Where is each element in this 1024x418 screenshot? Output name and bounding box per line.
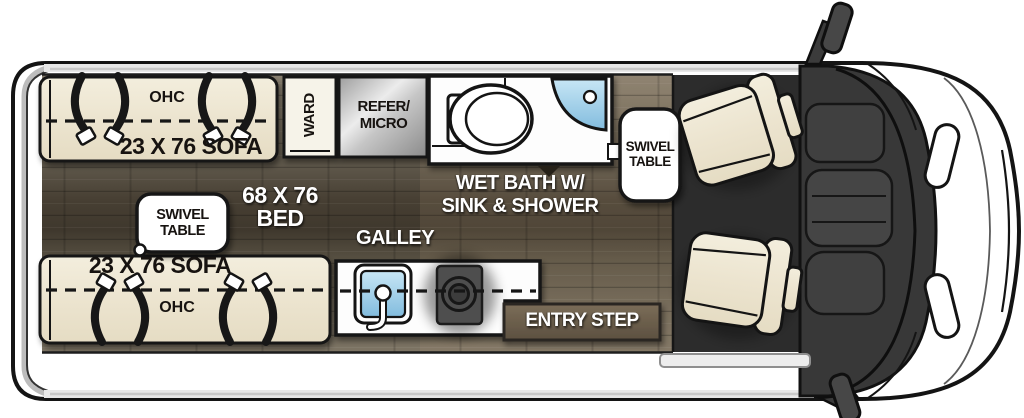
floorplan-canvas: OHC 23 X 76 SOFA 23 X 76 SOFA OHC WARD R… <box>0 0 1024 418</box>
side-mirror-top-icon <box>806 1 854 64</box>
refrigerator-label: REFER/ MICRO <box>341 99 426 132</box>
running-board <box>660 354 810 367</box>
wardrobe-label: WARD <box>302 75 319 155</box>
swivel-table-right-label: SWIVEL TABLE <box>621 139 679 169</box>
bed-label: 68 X 76 BED <box>200 184 360 230</box>
dash-upper <box>806 104 884 162</box>
steering-area <box>806 252 884 314</box>
sofa-top-label: 23 X 76 SOFA <box>95 134 287 158</box>
swivel-table-right-connector <box>608 144 620 159</box>
ohc-bottom-label: OHC <box>146 300 208 317</box>
entry-step-label: ENTRY STEP <box>504 311 660 331</box>
sofa-bottom-label: 23 X 76 SOFA <box>64 253 256 277</box>
cooktop-icon <box>437 266 482 324</box>
center-console <box>806 170 892 246</box>
wet-bath-label: WET BATH W/ SINK & SHOWER <box>424 172 616 218</box>
galley-label: GALLEY <box>335 227 455 250</box>
toilet-icon <box>448 85 532 153</box>
ohc-top-label: OHC <box>136 90 198 107</box>
